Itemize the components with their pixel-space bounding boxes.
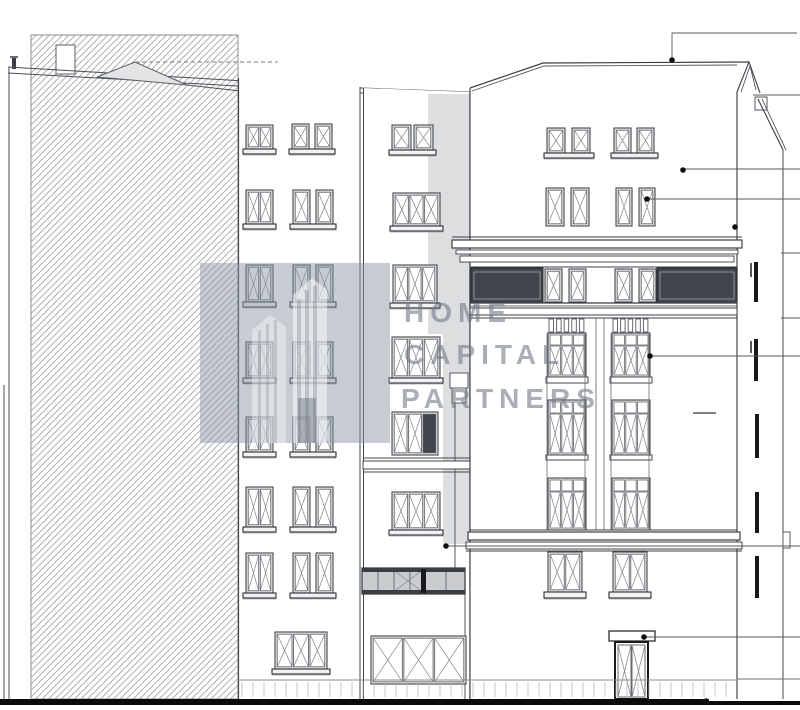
window-sill [243, 452, 276, 458]
tower-ribbon-window [362, 568, 465, 594]
window-sill [243, 224, 276, 230]
window [637, 128, 654, 153]
window-sill [609, 592, 651, 599]
spandrel [610, 377, 652, 383]
window [246, 125, 273, 149]
window [545, 269, 562, 302]
window [639, 188, 655, 226]
watermark-text-home: HOME [404, 299, 512, 327]
window [639, 269, 656, 302]
corbel [613, 319, 618, 332]
ground-line [0, 699, 800, 705]
window-sill [290, 452, 336, 458]
corbel [636, 319, 641, 332]
window [546, 188, 564, 226]
window [316, 190, 333, 224]
window [392, 492, 440, 530]
stack-window-unit [612, 400, 650, 455]
window [275, 632, 327, 669]
window-sill [611, 153, 658, 159]
window [569, 269, 586, 302]
lower-cornice [466, 530, 742, 551]
window-sill [544, 592, 586, 599]
window-sill [272, 669, 330, 675]
window-sill [290, 593, 336, 599]
window [571, 188, 589, 226]
window [316, 553, 333, 593]
watermark-logo [200, 263, 390, 443]
corbel [643, 319, 648, 332]
window [315, 124, 332, 149]
window [293, 190, 310, 224]
window [371, 636, 466, 684]
corbel [579, 319, 584, 332]
corbel [621, 319, 626, 332]
window [392, 412, 438, 455]
spandrel [546, 455, 588, 460]
right-wing [750, 97, 790, 699]
corbel [628, 319, 633, 332]
left-site-boundary [4, 67, 9, 699]
slit-windows [754, 262, 759, 598]
window-sill [389, 150, 436, 156]
window-sill [243, 593, 276, 599]
window [615, 269, 632, 302]
stack-window-unit [612, 333, 650, 377]
watermark-text-capital: CAPITAL [404, 341, 565, 369]
corbel [564, 319, 569, 332]
elevation-canvas: HOME CAPITAL PARTNERS [0, 0, 800, 710]
window [414, 125, 433, 150]
elevation-drawing [0, 0, 800, 710]
window [613, 552, 647, 592]
window [572, 128, 590, 153]
door-canopy [609, 631, 655, 641]
window [614, 128, 631, 153]
window [246, 553, 273, 593]
window-sill [544, 153, 594, 159]
window [548, 552, 582, 592]
window-sill [243, 149, 276, 155]
stack-window-unit [612, 478, 650, 530]
corbel [549, 319, 554, 332]
watermark-text-partners: PARTNERS [401, 385, 601, 413]
window-sill [289, 149, 335, 155]
window [246, 487, 273, 527]
window-sill [243, 527, 276, 533]
window [246, 190, 273, 224]
window [393, 193, 440, 226]
window [293, 487, 310, 527]
window [293, 553, 310, 593]
window-sill [389, 530, 443, 536]
window [316, 487, 333, 527]
window [616, 188, 632, 226]
stack-window-unit [548, 478, 586, 530]
window-sill [290, 527, 336, 533]
corbel [572, 319, 577, 332]
window-sill [390, 226, 443, 232]
window [292, 124, 309, 149]
corbel [557, 319, 562, 332]
spandrel [610, 455, 652, 460]
window [392, 125, 411, 150]
window-sill [290, 224, 336, 230]
window [547, 128, 565, 153]
